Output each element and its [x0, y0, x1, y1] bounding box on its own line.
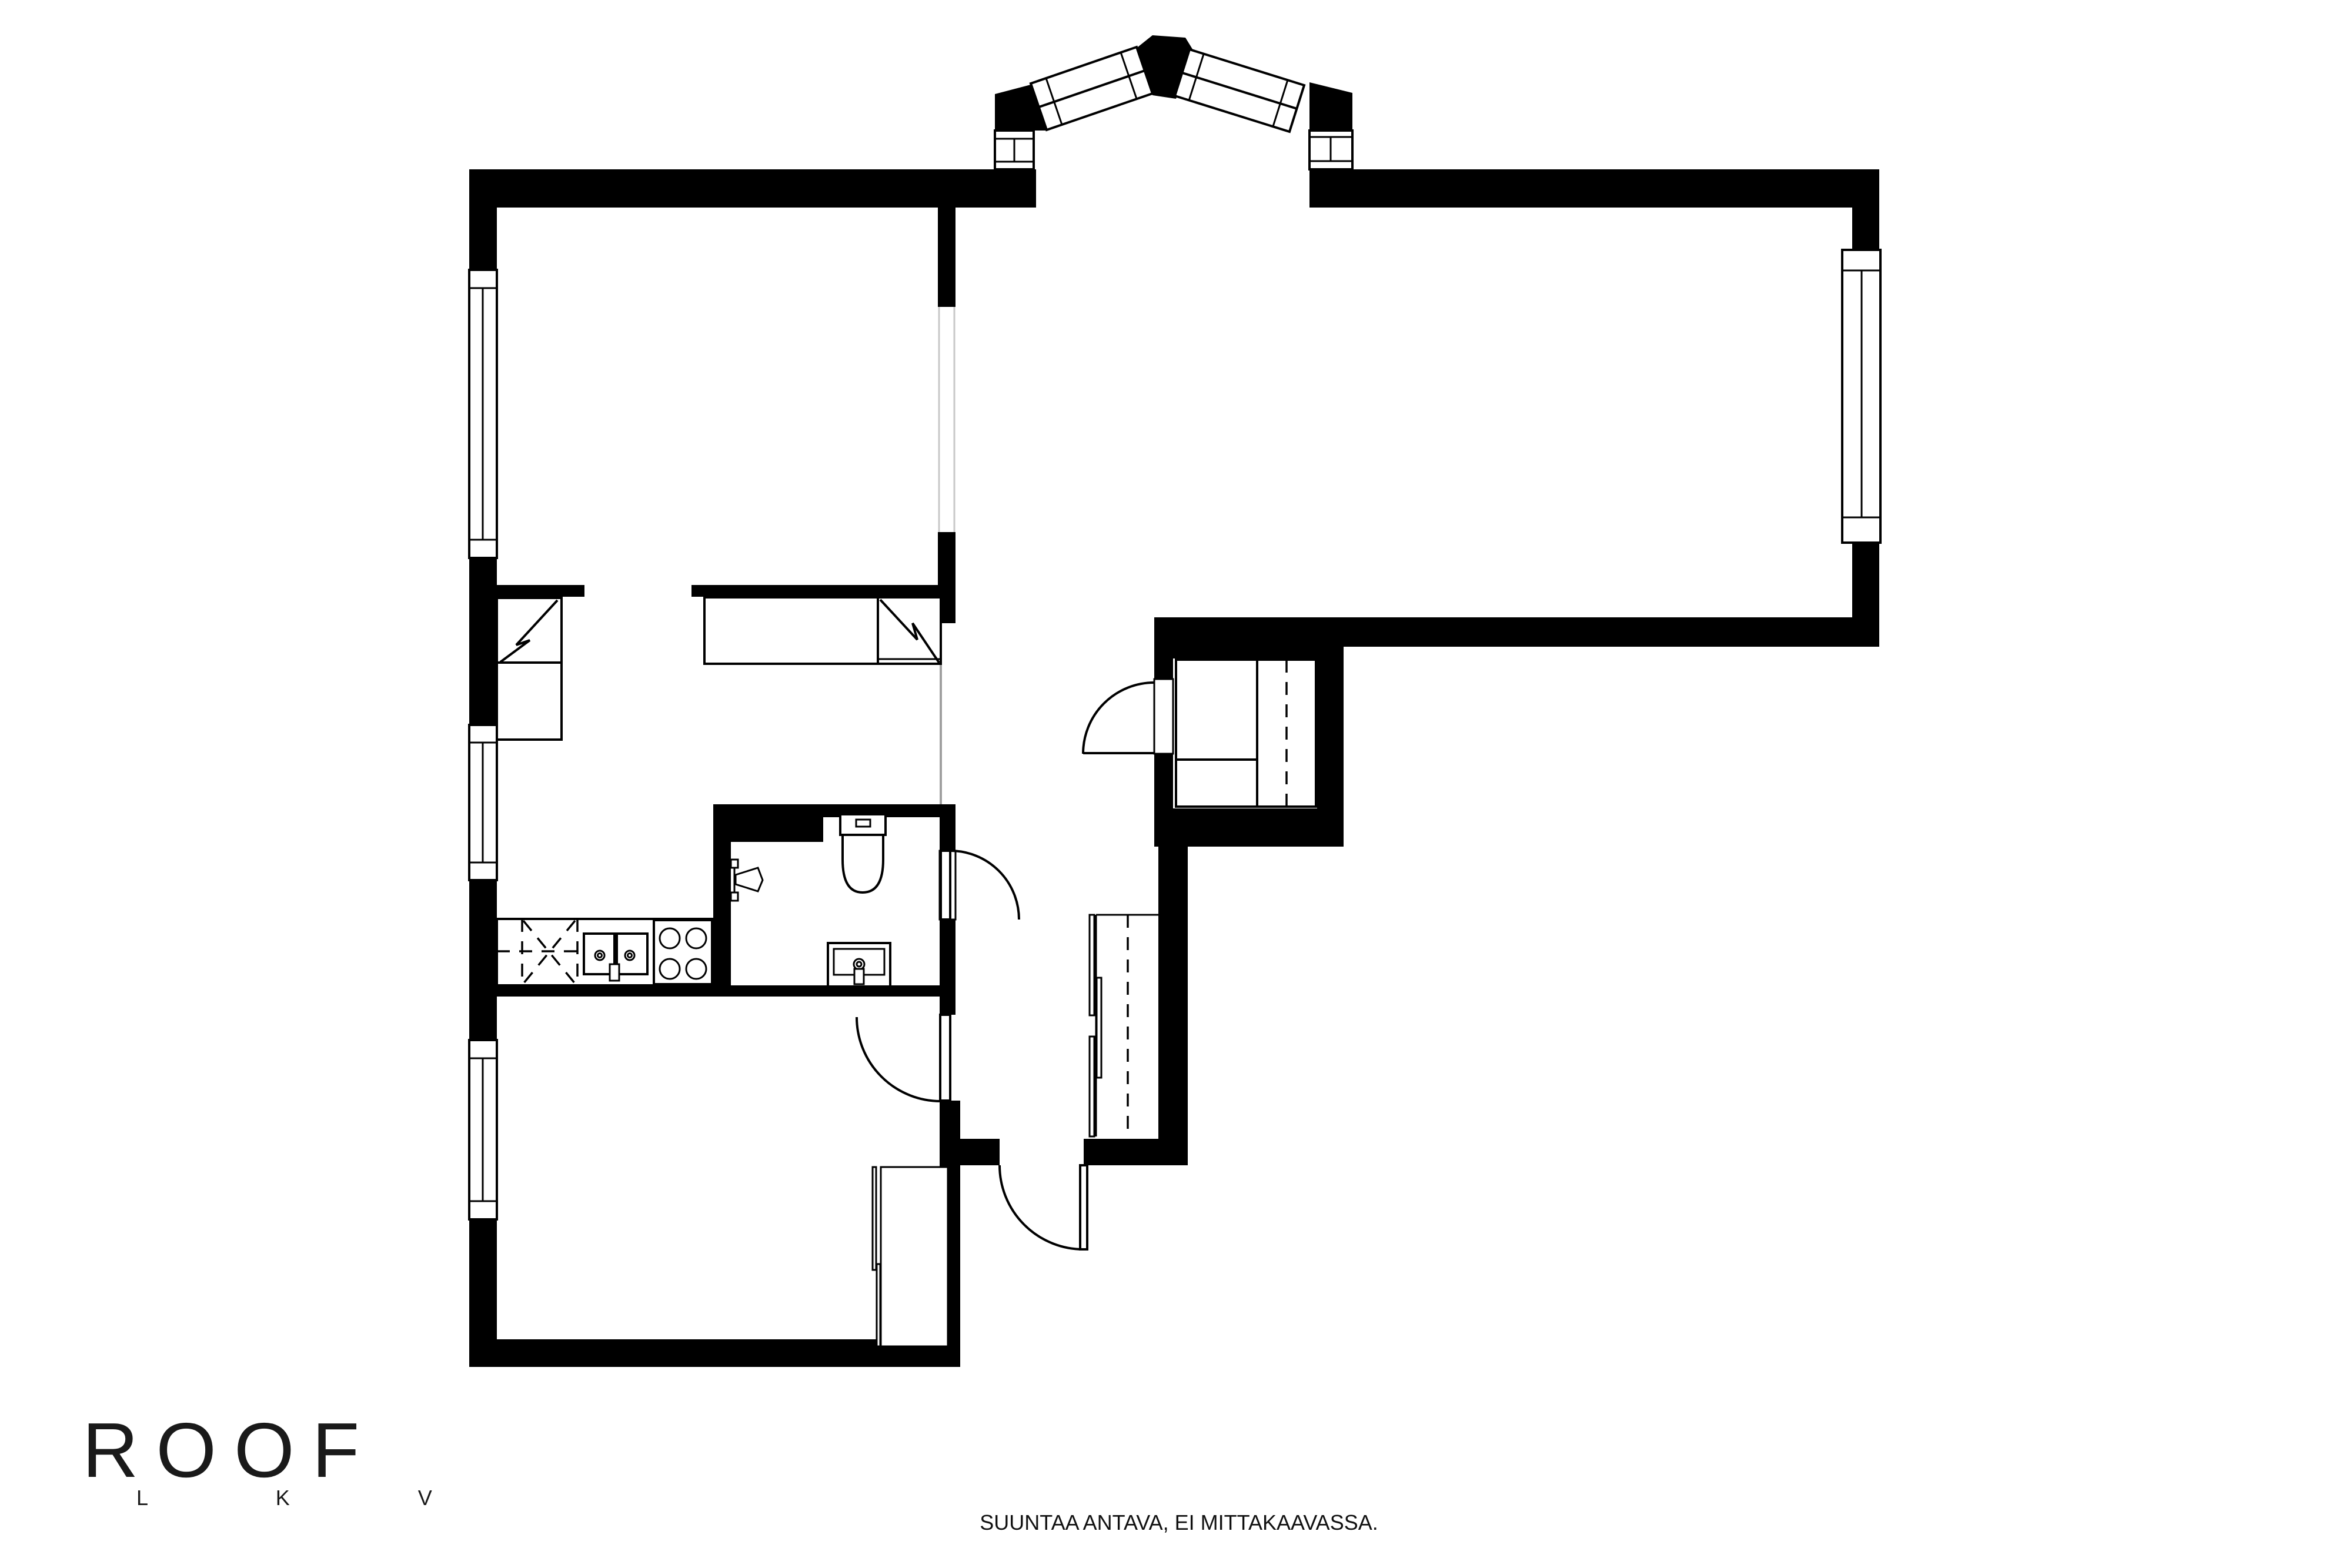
wall-segment	[940, 804, 955, 851]
floor-plan-page: ROOF L K V SUUNTAA ANTAVA, EI MITTAKAAVA…	[0, 0, 2352, 1568]
wall-segment	[1154, 617, 1173, 679]
wall-segment	[1309, 169, 1879, 208]
wall-segment	[1084, 1139, 1188, 1165]
wall-segment	[938, 169, 955, 307]
washbasin-faucet-stem	[854, 969, 864, 984]
wardrobe-left	[497, 598, 562, 740]
kitchen	[497, 919, 713, 985]
wall-segment	[497, 985, 713, 997]
sliding-door-panel	[1090, 915, 1094, 1015]
wall-segment	[713, 985, 940, 997]
wall-segment	[713, 842, 731, 997]
toilet-flush-button	[856, 820, 870, 827]
toilet-bowl	[843, 835, 883, 892]
walk-in-closet-unit	[1176, 660, 1316, 807]
wall-segment	[691, 585, 955, 597]
wall-segment	[469, 880, 497, 1040]
wall-segment	[940, 920, 955, 1015]
wardrobe-right	[704, 597, 941, 664]
sliding-door-panel	[873, 1167, 876, 1270]
door-leaf	[940, 1015, 950, 1101]
wall-segment	[1154, 754, 1173, 808]
door-leaf	[941, 851, 950, 920]
disclaimer-text: SUUNTAA ANTAVA, EI MITTAKAAVASSA.	[980, 1510, 1378, 1534]
wall-segment	[1344, 617, 1879, 647]
wall-segment	[497, 585, 584, 597]
wall-segment	[1154, 808, 1344, 847]
brand-logo-sub: L K V	[136, 1486, 493, 1510]
wall-segment	[469, 558, 497, 725]
wall-segment	[1852, 169, 1879, 250]
floor-plan-svg: ROOF L K V SUUNTAA ANTAVA, EI MITTAKAAVA…	[0, 0, 2352, 1568]
wardrobe-bottom-room	[881, 1167, 948, 1346]
shower-bracket	[731, 892, 738, 901]
sliding-door-panel	[877, 1264, 880, 1346]
wall-segment	[713, 804, 823, 842]
sliding-door-panel	[1090, 1037, 1094, 1136]
entrance-door-leaf	[1080, 1165, 1087, 1249]
wall-segment	[1154, 617, 1344, 658]
sink-faucet	[610, 964, 619, 981]
sliding-door-panel	[1097, 978, 1101, 1078]
shower-bracket	[731, 860, 738, 868]
door-jamb	[1154, 679, 1173, 754]
wall-segment	[1158, 847, 1188, 1165]
brand-logo: ROOF	[82, 1407, 377, 1493]
